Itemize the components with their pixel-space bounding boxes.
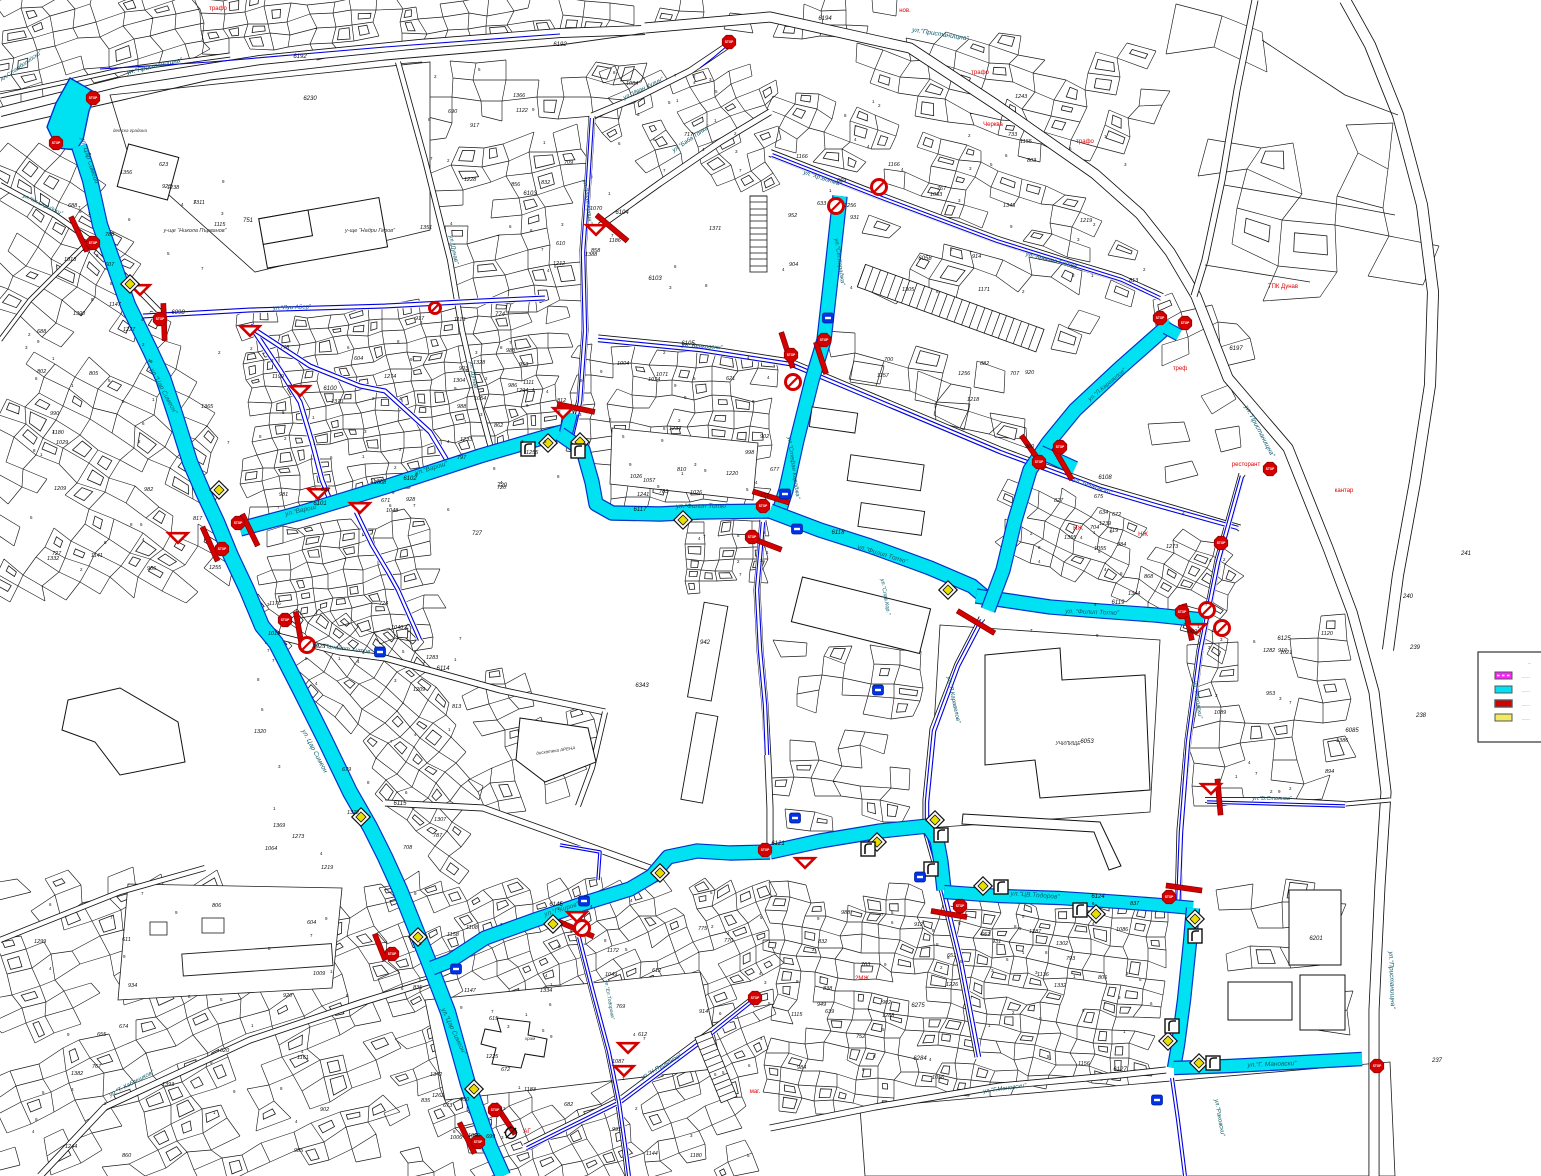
svg-text:1225: 1225 xyxy=(486,1054,499,1060)
svg-text:STOP: STOP xyxy=(759,504,768,508)
svg-text:923: 923 xyxy=(162,184,172,190)
svg-text:787: 787 xyxy=(433,833,443,839)
svg-text:1307: 1307 xyxy=(434,817,447,823)
svg-text:6098: 6098 xyxy=(171,310,185,316)
svg-text:1283: 1283 xyxy=(426,655,439,661)
svg-text:1345: 1345 xyxy=(1003,203,1016,209)
svg-text:778: 778 xyxy=(280,345,290,351)
svg-text:1144: 1144 xyxy=(646,1151,658,1157)
svg-text:988: 988 xyxy=(457,404,467,410)
svg-text:998: 998 xyxy=(745,450,755,456)
svg-text:674: 674 xyxy=(119,1024,128,1030)
svg-text:953: 953 xyxy=(1266,691,1276,697)
svg-text:672: 672 xyxy=(501,1067,510,1073)
svg-text:805: 805 xyxy=(89,371,99,377)
svg-text:1089: 1089 xyxy=(1214,710,1226,716)
svg-text:767: 767 xyxy=(937,186,947,192)
svg-text:1243: 1243 xyxy=(1015,94,1028,100)
svg-text:862: 862 xyxy=(494,423,503,429)
svg-text:STOP: STOP xyxy=(89,241,98,245)
svg-text:STOP: STOP xyxy=(491,1108,500,1112)
svg-text:990: 990 xyxy=(50,411,60,417)
svg-text:639: 639 xyxy=(825,1009,834,1015)
svg-text:1004: 1004 xyxy=(617,361,629,367)
svg-text:1370: 1370 xyxy=(331,399,344,405)
svg-text:1176: 1176 xyxy=(269,601,282,607)
svg-text:806: 806 xyxy=(1098,975,1108,981)
svg-text:1019: 1019 xyxy=(268,631,280,637)
svg-text:960: 960 xyxy=(1025,444,1035,450)
svg-text:1053: 1053 xyxy=(930,192,943,198)
svg-text:6125: 6125 xyxy=(1277,636,1291,642)
svg-text:1199: 1199 xyxy=(272,374,284,380)
svg-text:858: 858 xyxy=(591,248,601,254)
svg-text:6104: 6104 xyxy=(615,210,629,216)
svg-text:1228: 1228 xyxy=(464,177,477,183)
svg-text:1241: 1241 xyxy=(637,492,649,498)
svg-text:733: 733 xyxy=(1008,132,1018,138)
svg-text:1351: 1351 xyxy=(420,225,432,231)
svg-text:1366: 1366 xyxy=(513,93,526,99)
svg-text:623: 623 xyxy=(159,162,169,168)
svg-text:793: 793 xyxy=(1066,956,1076,962)
svg-text:770: 770 xyxy=(724,938,734,944)
svg-text:931: 931 xyxy=(850,215,859,221)
svg-text:1365: 1365 xyxy=(201,404,214,410)
svg-text:STOP: STOP xyxy=(761,848,770,852)
svg-text:802: 802 xyxy=(37,369,46,375)
svg-text:920: 920 xyxy=(283,993,293,999)
svg-text:Черква: Черква xyxy=(983,122,1003,128)
svg-text:1171: 1171 xyxy=(978,287,990,293)
svg-text:нов.: нов. xyxy=(899,8,911,14)
svg-text:STOP: STOP xyxy=(281,618,290,622)
svg-text:НЖ: НЖ xyxy=(1073,526,1083,532)
svg-text:1256: 1256 xyxy=(958,371,971,377)
svg-text:1064: 1064 xyxy=(265,846,277,852)
svg-text:806: 806 xyxy=(212,903,222,909)
svg-text:1302: 1302 xyxy=(1056,941,1068,947)
svg-text:751: 751 xyxy=(243,218,253,224)
svg-text:1355: 1355 xyxy=(1064,535,1077,541)
svg-text:1115: 1115 xyxy=(791,1012,803,1018)
svg-text:STOP: STOP xyxy=(1373,1064,1382,1068)
svg-text:982: 982 xyxy=(144,487,153,493)
svg-text:669: 669 xyxy=(837,178,846,184)
svg-text:1274: 1274 xyxy=(384,374,396,380)
svg-text:6115: 6115 xyxy=(394,801,408,807)
svg-text:904: 904 xyxy=(789,262,798,268)
svg-text:986: 986 xyxy=(508,383,518,389)
svg-text:657: 657 xyxy=(981,932,991,938)
svg-text:ул.“Луи Айер”: ул.“Луи Айер” xyxy=(272,303,312,311)
svg-text:238: 238 xyxy=(1415,713,1427,719)
svg-text:АГ: АГ xyxy=(523,1129,531,1135)
svg-text:6100: 6100 xyxy=(323,386,337,392)
svg-text:1219: 1219 xyxy=(1080,218,1092,224)
svg-text:STOP: STOP xyxy=(1035,460,1044,464)
svg-text:1356: 1356 xyxy=(120,170,133,176)
svg-text:827: 827 xyxy=(1054,498,1064,504)
svg-text:1226: 1226 xyxy=(946,982,959,988)
svg-text:1141: 1141 xyxy=(91,553,103,559)
svg-text:952: 952 xyxy=(788,213,797,219)
svg-text:882: 882 xyxy=(980,361,989,367)
svg-text:1108: 1108 xyxy=(466,925,479,931)
svg-text:STOP: STOP xyxy=(820,338,829,342)
svg-text:ул.“Б.Стоянов”: ул.“Б.Стоянов” xyxy=(1251,796,1293,802)
svg-text:6085: 6085 xyxy=(1345,728,1359,734)
svg-text:1255: 1255 xyxy=(526,450,539,456)
svg-text:6103: 6103 xyxy=(648,276,662,282)
svg-text:STOP: STOP xyxy=(1217,541,1226,545)
svg-text:STOP: STOP xyxy=(748,535,757,539)
svg-text:727: 727 xyxy=(472,531,483,537)
svg-text:673: 673 xyxy=(443,1103,453,1109)
svg-text:1086: 1086 xyxy=(1116,927,1129,933)
svg-text:1054: 1054 xyxy=(474,396,486,402)
svg-text:1084: 1084 xyxy=(626,81,638,87)
svg-text:690: 690 xyxy=(448,109,458,115)
svg-text:1372: 1372 xyxy=(347,810,359,816)
svg-text:1209: 1209 xyxy=(413,687,425,693)
svg-text:991: 991 xyxy=(612,1127,621,1133)
svg-text:ул.“Филип Тотю”: ул.“Филип Тотю” xyxy=(675,503,729,510)
svg-text:699: 699 xyxy=(486,1134,495,1140)
svg-text:2МЖ: 2МЖ xyxy=(855,976,869,982)
svg-text:752: 752 xyxy=(856,1034,865,1040)
svg-text:6284: 6284 xyxy=(913,1056,927,1062)
svg-text:STOP: STOP xyxy=(474,1140,483,1144)
svg-text:1234: 1234 xyxy=(669,426,681,432)
svg-text:STOP: STOP xyxy=(234,521,243,525)
svg-text:храм: храм xyxy=(524,1036,535,1041)
svg-text:615: 615 xyxy=(489,1016,499,1022)
svg-text:1056: 1056 xyxy=(932,1075,945,1081)
svg-text:856: 856 xyxy=(511,182,521,188)
svg-text:1255: 1255 xyxy=(209,565,222,571)
svg-text:769: 769 xyxy=(616,1004,625,1010)
svg-text:6117: 6117 xyxy=(634,507,648,513)
svg-text:775: 775 xyxy=(698,926,708,932)
svg-text:у-ще “Надри Геров”: у-ще “Надри Геров” xyxy=(344,228,396,234)
svg-text:1055: 1055 xyxy=(1094,546,1107,552)
svg-text:1342: 1342 xyxy=(430,1072,442,1078)
svg-text:1262: 1262 xyxy=(432,1093,444,1099)
svg-text:1074: 1074 xyxy=(648,377,660,383)
svg-text:981: 981 xyxy=(279,492,288,498)
svg-text:1087: 1087 xyxy=(612,1059,625,1065)
svg-text:1180: 1180 xyxy=(690,1153,703,1159)
svg-text:STOP: STOP xyxy=(1165,895,1174,899)
svg-text:1111: 1111 xyxy=(523,380,534,386)
svg-text:1029: 1029 xyxy=(56,440,68,446)
svg-text:1166: 1166 xyxy=(888,162,901,168)
svg-text:812: 812 xyxy=(557,398,566,404)
svg-text:783: 783 xyxy=(659,489,669,495)
svg-text:682: 682 xyxy=(564,1102,573,1108)
svg-text:237: 237 xyxy=(1431,1058,1443,1064)
svg-text:942: 942 xyxy=(700,640,711,646)
svg-text:675: 675 xyxy=(1094,494,1104,500)
svg-text:STOP: STOP xyxy=(1056,445,1065,449)
svg-text:НЖ: НЖ xyxy=(1138,532,1148,538)
svg-text:688: 688 xyxy=(37,329,47,335)
svg-text:688: 688 xyxy=(68,203,78,209)
svg-text:6124: 6124 xyxy=(1091,894,1105,900)
svg-text:STOP: STOP xyxy=(1156,316,1165,320)
svg-text:STOP: STOP xyxy=(1178,610,1187,614)
svg-text:1305: 1305 xyxy=(902,287,915,293)
svg-text:634: 634 xyxy=(1099,510,1108,516)
svg-text:763: 763 xyxy=(861,962,871,968)
svg-text:1025: 1025 xyxy=(313,644,326,650)
svg-text:1026: 1026 xyxy=(690,490,703,496)
svg-text:679: 679 xyxy=(342,767,351,773)
svg-text:1299: 1299 xyxy=(34,939,46,945)
svg-text:1294: 1294 xyxy=(516,388,528,394)
svg-text:832: 832 xyxy=(818,939,827,945)
svg-text:1233: 1233 xyxy=(460,437,473,443)
svg-text:.......: ....... xyxy=(1522,674,1530,679)
svg-text:.......: ....... xyxy=(1522,688,1530,693)
svg-text:1049: 1049 xyxy=(605,972,617,978)
svg-text:1219: 1219 xyxy=(321,865,333,871)
svg-text:604: 604 xyxy=(354,356,363,362)
svg-text:.......: ....... xyxy=(1522,702,1530,707)
svg-text:кантар: кантар xyxy=(1335,488,1354,494)
svg-text:треф: треф xyxy=(1173,366,1187,372)
svg-text:6114: 6114 xyxy=(437,666,451,672)
svg-text:677: 677 xyxy=(770,467,780,473)
svg-text:...: ... xyxy=(1528,660,1531,665)
svg-text:1382: 1382 xyxy=(71,1071,83,1077)
svg-text:1157: 1157 xyxy=(877,373,890,379)
svg-text:966: 966 xyxy=(147,566,157,572)
svg-text:1161: 1161 xyxy=(297,1055,309,1061)
svg-text:6194: 6194 xyxy=(818,16,832,22)
svg-text:771: 771 xyxy=(760,493,769,499)
svg-text:STOP: STOP xyxy=(1181,321,1190,325)
svg-text:914: 914 xyxy=(972,254,981,260)
svg-text:803: 803 xyxy=(1027,158,1037,164)
svg-text:831: 831 xyxy=(321,487,330,493)
svg-text:трафо: трафо xyxy=(1076,139,1094,145)
svg-text:240: 240 xyxy=(1402,594,1414,600)
svg-text:УЧИЛИЩЕ: УЧИЛИЩЕ xyxy=(1055,741,1081,747)
svg-text:1070: 1070 xyxy=(590,206,603,212)
svg-text:1288: 1288 xyxy=(882,1013,895,1019)
svg-text:STOP: STOP xyxy=(218,547,227,551)
svg-text:STOP: STOP xyxy=(787,353,796,357)
svg-text:ресторант: ресторант xyxy=(1232,462,1261,468)
svg-text:маг.: маг. xyxy=(750,1089,761,1095)
svg-text:620: 620 xyxy=(220,1048,230,1054)
svg-text:700: 700 xyxy=(884,357,894,363)
svg-text:1369: 1369 xyxy=(273,823,285,829)
svg-text:1304: 1304 xyxy=(453,378,465,384)
svg-text:241: 241 xyxy=(1460,551,1471,557)
svg-text:1172: 1172 xyxy=(607,948,619,954)
svg-text:783: 783 xyxy=(105,232,115,238)
svg-text:1120: 1120 xyxy=(1321,631,1334,637)
svg-text:1155: 1155 xyxy=(1020,139,1033,145)
svg-text:1136: 1136 xyxy=(1037,972,1050,978)
svg-text:1209: 1209 xyxy=(54,486,66,492)
svg-text:детска градина: детска градина xyxy=(113,128,147,133)
svg-text:1090: 1090 xyxy=(468,1133,481,1139)
svg-text:1334: 1334 xyxy=(540,988,552,994)
svg-text:797: 797 xyxy=(457,455,467,461)
svg-text:917: 917 xyxy=(470,123,480,129)
svg-text:672: 672 xyxy=(1112,512,1121,518)
svg-text:.......: ....... xyxy=(1522,716,1530,721)
svg-text:STOP: STOP xyxy=(725,40,734,44)
svg-text:6108: 6108 xyxy=(1098,475,1112,481)
svg-text:988: 988 xyxy=(506,348,516,354)
svg-text:1156: 1156 xyxy=(1078,1061,1091,1067)
svg-text:1239: 1239 xyxy=(1099,521,1111,527)
svg-text:6118: 6118 xyxy=(832,530,846,536)
svg-text:902: 902 xyxy=(882,1000,891,1006)
svg-text:813: 813 xyxy=(452,704,462,710)
svg-text:1220: 1220 xyxy=(726,471,739,477)
svg-text:1393: 1393 xyxy=(162,1082,175,1088)
svg-text:6201: 6201 xyxy=(1309,936,1322,942)
svg-text:1273: 1273 xyxy=(292,834,305,840)
svg-text:1344: 1344 xyxy=(1128,591,1140,597)
svg-text:953: 953 xyxy=(519,362,529,368)
svg-text:868: 868 xyxy=(1144,574,1154,580)
svg-text:912: 912 xyxy=(914,922,923,928)
svg-text:720: 720 xyxy=(497,485,507,491)
svg-text:607: 607 xyxy=(105,262,115,268)
svg-text:1227: 1227 xyxy=(123,327,136,333)
svg-text:6121: 6121 xyxy=(771,841,784,847)
svg-text:трафо: трафо xyxy=(971,70,989,76)
svg-text:837: 837 xyxy=(1130,901,1140,907)
svg-text:у-ще “Никола Първанов”: у-ще “Никола Първанов” xyxy=(163,228,228,234)
svg-text:6119: 6119 xyxy=(1112,600,1126,606)
svg-text:832: 832 xyxy=(541,180,550,186)
svg-text:1244: 1244 xyxy=(65,1144,77,1150)
svg-text:6053: 6053 xyxy=(1080,739,1094,745)
svg-text:709: 709 xyxy=(564,160,573,166)
svg-text:1122: 1122 xyxy=(516,108,528,114)
svg-text:1026: 1026 xyxy=(630,474,643,480)
svg-text:950: 950 xyxy=(460,1097,470,1103)
svg-text:610: 610 xyxy=(556,241,566,247)
svg-text:949: 949 xyxy=(817,1002,826,1008)
svg-text:1147: 1147 xyxy=(370,479,383,485)
svg-text:817: 817 xyxy=(193,516,203,522)
svg-text:708: 708 xyxy=(403,845,413,851)
svg-text:239: 239 xyxy=(1409,645,1421,651)
svg-text:1009: 1009 xyxy=(313,971,325,977)
svg-text:1186: 1186 xyxy=(609,238,622,244)
svg-text:934: 934 xyxy=(128,983,137,989)
svg-text:1147: 1147 xyxy=(109,302,122,308)
svg-text:774: 774 xyxy=(495,312,506,318)
svg-text:6197: 6197 xyxy=(1229,346,1243,352)
svg-text:ТПК Дунав: ТПК Дунав xyxy=(1268,284,1298,290)
svg-text:611: 611 xyxy=(122,937,131,943)
svg-text:STOP: STOP xyxy=(52,141,61,145)
svg-text:1282: 1282 xyxy=(1263,648,1275,654)
svg-text:902: 902 xyxy=(320,1107,329,1113)
svg-text:988: 988 xyxy=(841,910,851,916)
svg-text:6192: 6192 xyxy=(293,54,307,60)
svg-text:894: 894 xyxy=(1325,769,1334,775)
svg-text:910: 910 xyxy=(1278,648,1288,654)
svg-text:STOP: STOP xyxy=(89,96,98,100)
svg-text:813: 813 xyxy=(1129,278,1139,284)
svg-text:1147: 1147 xyxy=(464,988,477,994)
svg-text:STOP: STOP xyxy=(956,904,965,908)
svg-text:6127: 6127 xyxy=(1113,1067,1127,1073)
svg-text:1115: 1115 xyxy=(214,222,226,228)
svg-text:6101: 6101 xyxy=(313,501,326,507)
svg-text:1057: 1057 xyxy=(643,478,656,484)
svg-text:STOP: STOP xyxy=(388,952,397,956)
svg-text:984: 984 xyxy=(1117,542,1126,548)
svg-text:1320: 1320 xyxy=(254,729,267,735)
svg-text:1218: 1218 xyxy=(967,397,980,403)
svg-text:STOP: STOP xyxy=(156,317,165,321)
svg-text:633: 633 xyxy=(817,201,827,207)
svg-text:724: 724 xyxy=(379,601,388,607)
svg-text:707: 707 xyxy=(1010,371,1020,377)
svg-text:6343: 6343 xyxy=(635,683,649,689)
svg-text:1040: 1040 xyxy=(391,625,404,631)
svg-text:STOP: STOP xyxy=(1266,467,1275,471)
svg-text:1166: 1166 xyxy=(796,154,809,160)
svg-text:604: 604 xyxy=(307,920,316,926)
svg-text:984: 984 xyxy=(797,1065,806,1071)
svg-text:1158: 1158 xyxy=(447,932,460,938)
svg-text:6230: 6230 xyxy=(303,96,317,102)
svg-text:931: 931 xyxy=(992,939,1001,945)
svg-text:1013: 1013 xyxy=(64,257,77,263)
svg-text:трафо: трафо xyxy=(209,6,227,12)
svg-text:6103: 6103 xyxy=(523,191,537,197)
svg-text:914: 914 xyxy=(699,1009,708,1015)
svg-text:1113: 1113 xyxy=(454,317,466,323)
svg-text:727: 727 xyxy=(52,551,62,557)
svg-text:1256: 1256 xyxy=(844,203,857,209)
svg-text:6058: 6058 xyxy=(918,256,932,262)
svg-text:838: 838 xyxy=(823,986,833,992)
svg-text:1048: 1048 xyxy=(386,508,399,514)
svg-text:621: 621 xyxy=(726,376,735,382)
svg-text:1287: 1287 xyxy=(1029,929,1042,935)
svg-text:985: 985 xyxy=(294,1148,304,1154)
svg-text:869: 869 xyxy=(1188,629,1197,635)
svg-text:612: 612 xyxy=(652,968,661,974)
svg-text:1371: 1371 xyxy=(709,226,721,232)
svg-text:STOP: STOP xyxy=(751,996,760,1000)
svg-text:860: 860 xyxy=(122,1153,132,1159)
svg-text:717: 717 xyxy=(684,132,694,138)
svg-text:902: 902 xyxy=(760,434,769,440)
svg-text:835: 835 xyxy=(413,985,423,991)
svg-text:1273: 1273 xyxy=(1166,544,1179,550)
svg-text:1332: 1332 xyxy=(1054,983,1066,989)
svg-text:767: 767 xyxy=(92,1064,102,1070)
svg-text:1006: 1006 xyxy=(450,1135,463,1141)
svg-text:655: 655 xyxy=(97,1032,107,1038)
svg-text:6192: 6192 xyxy=(553,42,567,48)
